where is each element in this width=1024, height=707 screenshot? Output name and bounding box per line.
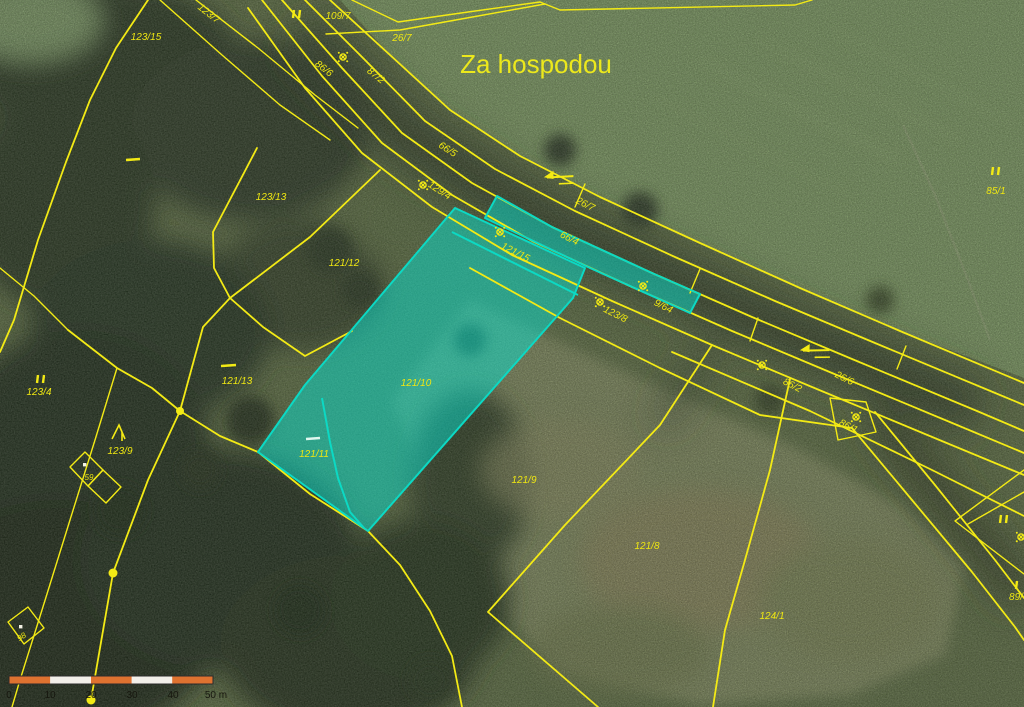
grassland-dash-icon (221, 365, 236, 366)
scale-bar-segment (10, 677, 51, 684)
parcel-label-123-9: 123/9 (107, 446, 132, 457)
scale-bar-segment (91, 677, 132, 684)
grassland-bar-single-icon (1016, 581, 1017, 589)
parcel-label-109-7: 109/7 (325, 11, 350, 22)
scale-tick-10: 10 (44, 690, 56, 701)
parcel-label-89: 89/ (1009, 592, 1024, 603)
parcel-label-121-13: 121/13 (222, 376, 253, 387)
cadastral-point-icon (851, 412, 861, 422)
map-canvas[interactable]: Za hospodou 123/15 123/7 109/7 26/7 86/6… (0, 0, 1024, 707)
cadastral-point-icon (638, 281, 648, 291)
scale-tick-40: 40 (167, 690, 179, 701)
parcel-label-123-4: 123/4 (26, 387, 51, 398)
parcel-label-85-1: 85/1 (986, 186, 1005, 197)
parcel-label-121-9: 121/9 (511, 475, 536, 486)
parcel-label-124-1: 124/1 (759, 611, 784, 622)
boundary-vertex-dot (176, 407, 184, 415)
parcel-label-123-13: 123/13 (256, 192, 287, 203)
grassland-dash-selected-icon (306, 438, 320, 439)
scale-tick-0: 0 (6, 690, 12, 701)
parcel-label-123-15: 123/15 (131, 32, 162, 43)
parcel-label-121-11: 121/11 (299, 449, 329, 460)
scale-tick-20: 20 (85, 690, 97, 701)
building-dot (83, 463, 86, 466)
parcel-label-59: 59 (85, 473, 94, 482)
boundary-vertex-dot (109, 569, 118, 578)
scale-bar-segment (172, 677, 212, 684)
parcel-label-121-8: 121/8 (634, 541, 659, 552)
building-dot (19, 625, 22, 628)
cadastral-point-icon (757, 360, 767, 370)
parcel-label-121-12: 121/12 (329, 258, 360, 269)
cadastral-map: Za hospodou 123/15 123/7 109/7 26/7 86/6… (0, 0, 1024, 707)
parcel-label-26-7a: 26/7 (391, 33, 412, 44)
grassland-dash-icon (126, 159, 140, 160)
scale-tick-50m: 50 m (205, 690, 227, 701)
cadastral-point-icon (595, 297, 605, 307)
cadastral-point-icon (338, 52, 348, 62)
cadastral-point-icon (495, 227, 505, 237)
place-name-label: Za hospodou (460, 49, 612, 79)
parcel-label-121-10: 121/10 (401, 378, 432, 389)
scale-tick-30: 30 (126, 690, 138, 701)
